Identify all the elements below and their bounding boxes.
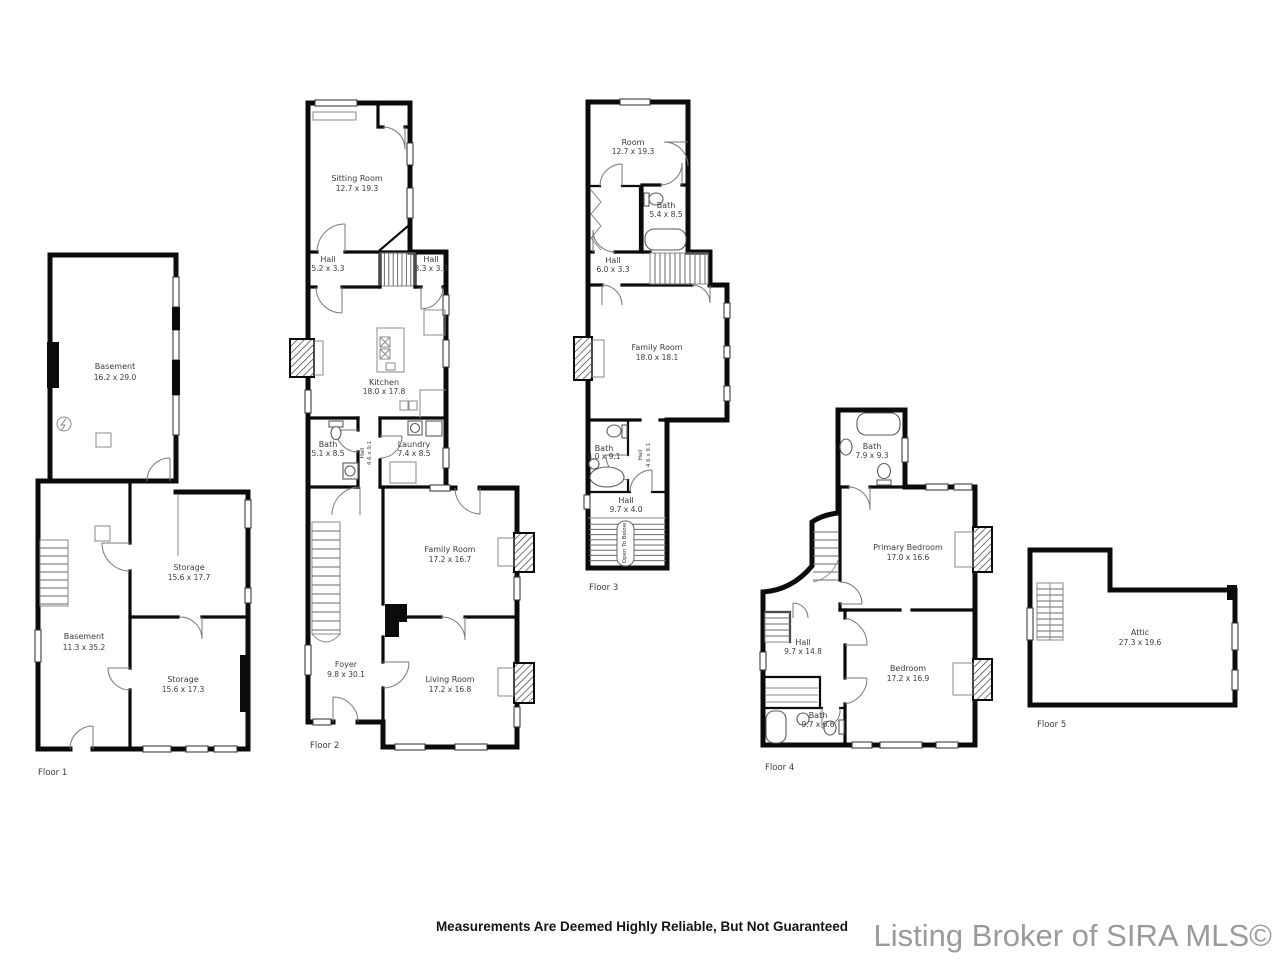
staircase-icon	[650, 253, 708, 284]
door-arc-icon	[793, 487, 870, 728]
support-post-icon	[95, 526, 110, 541]
room-dims: 11.3 x 35.2	[63, 643, 106, 652]
room-label: Bath	[863, 442, 882, 451]
floorplan-page: Basement 16.2 x 29.0 Storage 15.6 x 17.7…	[0, 0, 1280, 960]
room-dims: 9.7 x 6.6	[801, 720, 834, 729]
mls-branding-text: Listing Broker of SIRA MLS©	[874, 918, 1273, 953]
room-dims: 9.8 x 30.1	[327, 670, 365, 679]
room-label: Attic	[1131, 628, 1149, 637]
floor-3-plan: Open To Below Ro	[574, 99, 730, 593]
room-dims: 9.7 x 4.0	[609, 505, 642, 514]
room-dims: 9.7 x 14.8	[784, 647, 822, 656]
room-dims: 17.2 x 16.7	[429, 555, 472, 564]
electrical-panel-icon	[57, 417, 71, 431]
room-dims: 3.3 x 3.3	[414, 264, 447, 273]
room-dims: 7.9 x 9.3	[855, 451, 888, 460]
window-seat-icon	[313, 112, 356, 120]
hall-closet-walls	[763, 677, 820, 708]
room-label: Bath	[657, 201, 676, 210]
kitchen-island-icon	[377, 328, 404, 372]
floor-1-plan: Basement 16.2 x 29.0 Storage 15.6 x 17.7…	[35, 255, 251, 778]
room-dims: 6.0 x 3.3	[596, 265, 629, 274]
room-dims: 27.3 x 19.6	[1119, 638, 1162, 647]
room-label: Hall	[618, 496, 633, 505]
room-dims: 5.2 x 3.3	[311, 264, 344, 273]
wall-jamb	[172, 307, 180, 330]
room-dims: 17.0 x 16.6	[887, 553, 930, 562]
chimney-mass	[385, 604, 407, 637]
stairs-treads-icon	[765, 618, 790, 636]
room-dims: 12.7 x 19.3	[612, 147, 655, 156]
room-dims: 15.6 x 17.3	[162, 685, 205, 694]
floor-2-plan: Sitting Room 12.7 x 19.3 Hall 5.2 x 3.3 …	[290, 100, 534, 751]
fireplace-icon	[973, 659, 992, 700]
room-label: Kitchen	[369, 378, 399, 387]
staircase-icon	[312, 522, 340, 634]
floor-4-plan: Bath 7.9 x 9.3 Primary Bedroom 17.0 x 16…	[760, 410, 992, 773]
room-label: Hall	[605, 256, 620, 265]
fireplace-icon	[574, 337, 592, 380]
stairs-treads-icon	[384, 253, 410, 286]
room-dims: 17.2 x 16.9	[887, 674, 930, 683]
floor-label: Floor 2	[310, 741, 339, 751]
room-label: Basement	[95, 362, 135, 371]
disclaimer-text: Measurements Are Deemed Highly Reliable,…	[436, 919, 848, 934]
fireplace-icon	[290, 339, 314, 377]
wall-jamb	[1227, 585, 1237, 600]
room-label: Living Room	[425, 675, 474, 684]
floor1-lower-walls	[38, 481, 248, 749]
floor-label: Floor 4	[765, 763, 794, 773]
refrigerator-icon	[424, 310, 445, 335]
floor-label: Floor 3	[589, 583, 618, 593]
room-label: Family Room	[631, 343, 682, 352]
room-dims: 4.6 x 9.1	[367, 441, 373, 465]
sink-icon	[400, 401, 408, 410]
staircase-icon	[765, 612, 790, 642]
room-dims: 18.0 x 17.8	[363, 387, 406, 396]
room-label: Foyer	[335, 660, 358, 669]
floor-5-plan: Attic 27.3 x 19.6 Floor 5	[1027, 550, 1238, 730]
room-label: Basement	[64, 632, 104, 641]
room-label: Primary Bedroom	[873, 543, 943, 552]
floor-label: Floor 1	[38, 768, 67, 778]
room-dims: 7.4 x 8.5	[397, 449, 430, 458]
chimney-mass	[47, 342, 59, 388]
room-label: Hall	[423, 255, 438, 264]
floor-label: Floor 5	[1037, 720, 1066, 730]
door-arc-icon	[70, 458, 202, 749]
counter-icon	[420, 390, 446, 418]
room-label: Bath	[319, 440, 338, 449]
support-post-icon	[96, 433, 111, 447]
room-dims: 5.4 x 8.5	[649, 210, 682, 219]
room-dims: 16.2 x 29.0	[94, 373, 137, 382]
chimney-mass	[240, 655, 250, 712]
hearth-icon	[592, 340, 604, 377]
window-seat-icon	[953, 663, 973, 695]
floor2-outer-walls-upper	[308, 103, 446, 722]
room-label: Laundry	[398, 440, 431, 449]
room-label: Storage	[167, 675, 198, 684]
open-to-below-label: Open To Below	[622, 522, 628, 563]
room-dims: 18.0 x 18.1	[636, 353, 679, 362]
room-label: Sitting Room	[331, 174, 382, 183]
window-seat-icon	[498, 668, 514, 696]
window-seat-icon	[498, 538, 514, 566]
stairs-treads-icon	[312, 531, 340, 630]
floorplan-canvas: Basement 16.2 x 29.0 Storage 15.6 x 17.7…	[0, 0, 1280, 960]
floor3-outer-walls	[588, 102, 727, 568]
closet-walls	[378, 103, 410, 127]
fireplace-icon	[973, 527, 992, 572]
room-label: Family Room	[424, 545, 475, 554]
fireplace-icon	[514, 663, 534, 703]
room-dims: 15.6 x 17.7	[168, 573, 211, 582]
stairs-treads-icon	[40, 548, 68, 604]
room-label: Bath	[809, 711, 828, 720]
windows	[35, 277, 251, 752]
room-label: Hall	[360, 447, 366, 458]
windows	[1027, 608, 1238, 690]
window-seat-icon	[955, 532, 973, 567]
stair-curtail	[312, 634, 340, 642]
stairs-treads-icon	[813, 532, 839, 580]
room-dims: 4.6 x 9.1	[646, 443, 652, 467]
bath-fixtures	[766, 413, 900, 743]
angled-stair-wall	[380, 226, 408, 250]
sink-icon	[409, 401, 417, 410]
stairs-treads-icon	[655, 253, 705, 284]
hearth-icon	[314, 341, 323, 375]
fireplace-icon	[514, 533, 534, 572]
room-label: Room	[622, 138, 645, 147]
stair-curve	[813, 558, 839, 582]
room-dims: 12.7 x 19.3	[336, 184, 379, 193]
room-label: Hall	[320, 255, 335, 264]
room-dims: 17.2 x 16.8	[429, 685, 472, 694]
room-label: Hall	[638, 449, 644, 460]
room-label: Hall	[795, 638, 810, 647]
wall-jamb	[172, 360, 180, 395]
room-label: Storage	[173, 563, 204, 572]
stair-closet-walls	[763, 612, 790, 642]
room-dims: 4.0 x 9.1	[587, 452, 620, 461]
closet-shelves-icon	[766, 688, 818, 702]
room-label: Bedroom	[890, 664, 926, 673]
room-dims: 5.1 x 8.5	[311, 449, 344, 458]
